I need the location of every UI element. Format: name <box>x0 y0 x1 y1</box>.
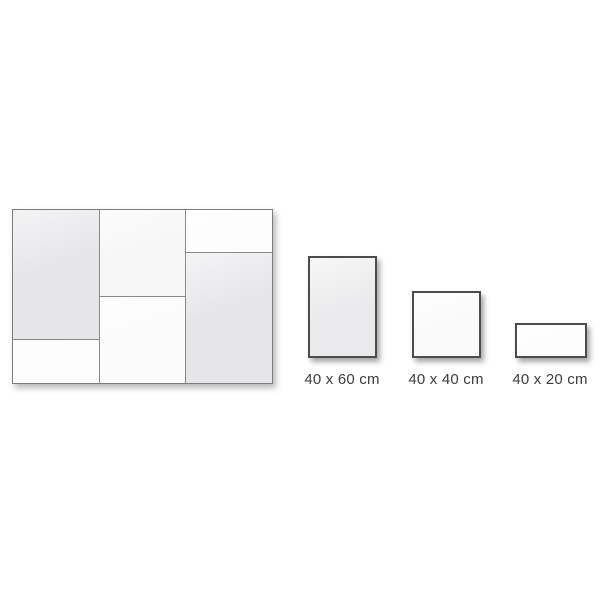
size-label-40x60: 40 x 60 cm <box>282 371 402 388</box>
size-tile-40x60 <box>308 256 377 358</box>
arrangement-column-left <box>13 210 99 383</box>
size-label-40x20: 40 x 20 cm <box>490 371 600 388</box>
size-tile-40x20 <box>515 323 587 358</box>
arrangement-panel-40x20-right <box>186 210 272 253</box>
arrangement-column-right <box>185 210 272 383</box>
arrangement-panel-40x60-right <box>186 253 272 383</box>
arrangement-panel-40x40-bottom <box>100 297 186 384</box>
arrangement-panel-40x60-left <box>13 210 99 340</box>
arrangement-panel-40x40-top <box>100 210 186 297</box>
arrangement-panel-40x20-left <box>13 340 99 383</box>
tile-arrangement <box>12 209 273 384</box>
size-label-40x40: 40 x 40 cm <box>386 371 506 388</box>
tile-size-diagram: 40 x 60 cm 40 x 40 cm 40 x 20 cm <box>0 0 600 600</box>
arrangement-column-middle <box>99 210 186 383</box>
size-tile-40x40 <box>412 291 481 358</box>
